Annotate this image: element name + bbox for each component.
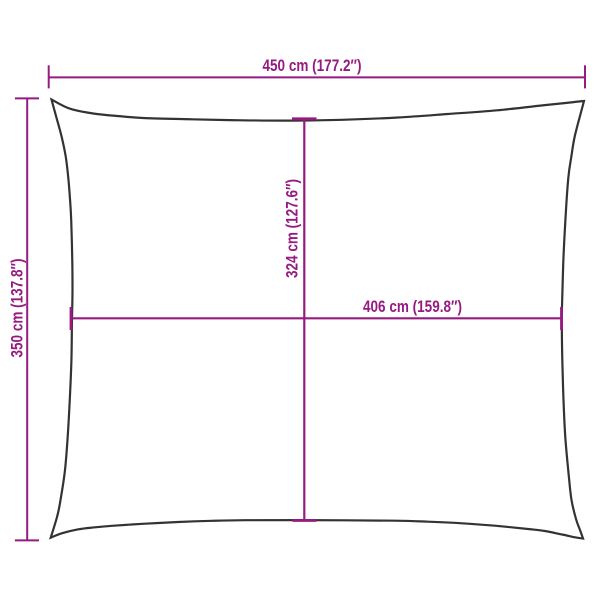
- svg-text:406 cm (159.8″): 406 cm (159.8″): [363, 298, 462, 316]
- svg-text:450 cm (177.2″): 450 cm (177.2″): [263, 57, 362, 75]
- svg-text:350 cm (137.8″): 350 cm (137.8″): [9, 259, 27, 358]
- svg-text:324 cm (127.6″): 324 cm (127.6″): [284, 179, 302, 278]
